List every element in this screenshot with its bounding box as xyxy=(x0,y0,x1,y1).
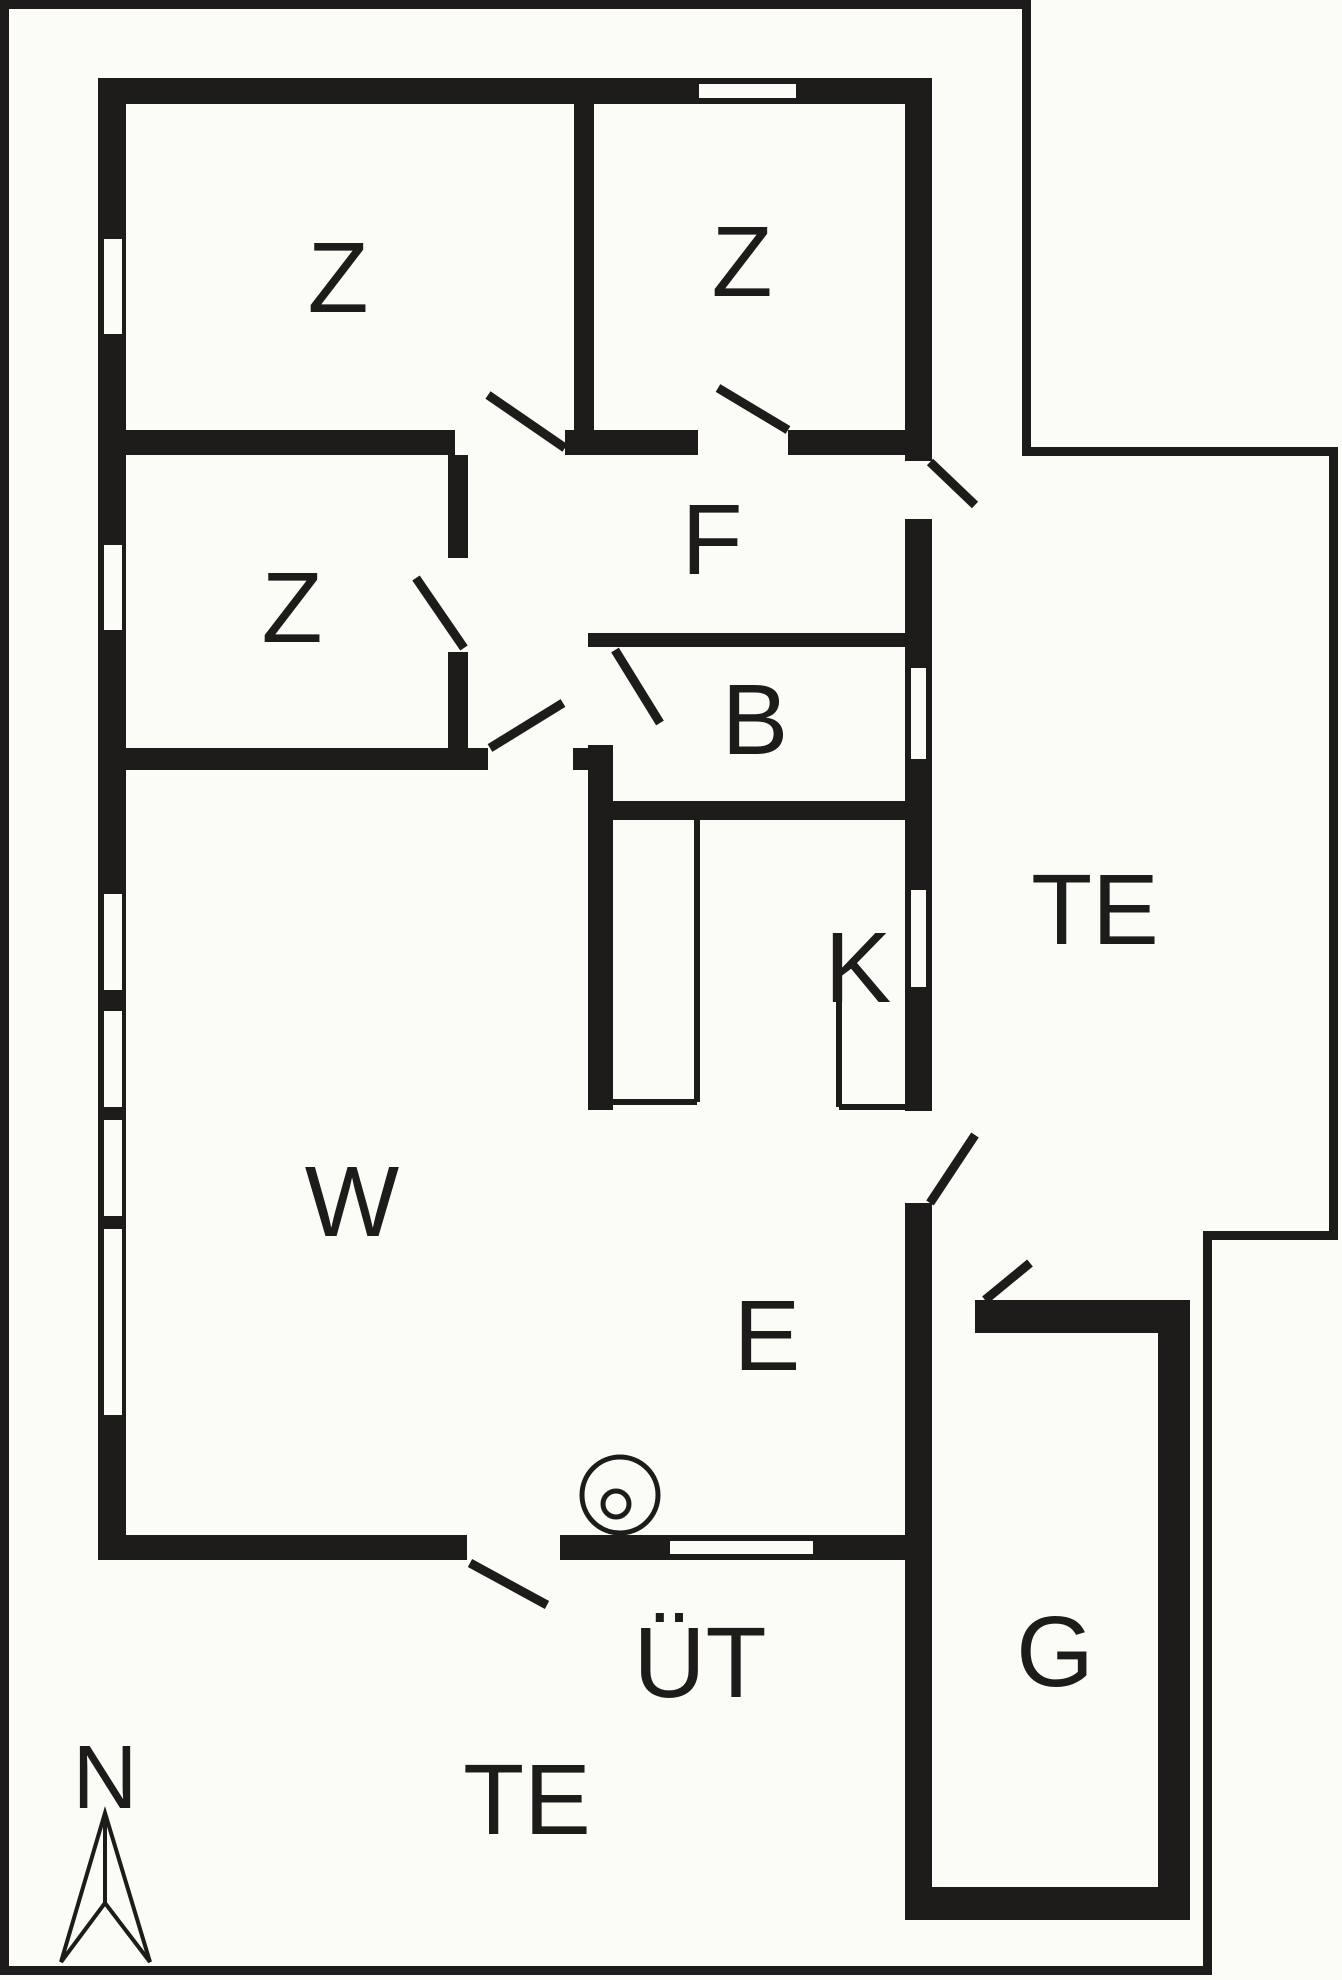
wall-bath-bottom xyxy=(588,801,905,820)
room-label-te-south: TE xyxy=(463,1750,591,1850)
wall-living-top-a xyxy=(126,748,488,770)
wall-kitchen-west xyxy=(588,745,613,1110)
room-label-g: G xyxy=(1016,1602,1094,1702)
plot-border-bottom xyxy=(0,1966,1212,1975)
wall-east-middle xyxy=(905,519,932,1111)
room-label-f: F xyxy=(681,490,742,590)
wall-bedroom-band-c xyxy=(788,430,905,455)
room-label-z3: Z xyxy=(261,558,322,658)
wall-z3-east-upper xyxy=(448,455,468,558)
window-east-b xyxy=(911,668,926,759)
door-leaf-bath xyxy=(615,650,660,723)
door-leaf-garage xyxy=(985,1263,1030,1300)
window-east-k xyxy=(911,890,926,987)
room-label-north: N xyxy=(73,1733,138,1823)
window-west-w1 xyxy=(104,894,122,990)
window-north-z2 xyxy=(699,84,796,98)
window-west-w4 xyxy=(104,1229,122,1415)
door-leaf-covered-terrace xyxy=(470,1563,547,1605)
room-label-z1: Z xyxy=(307,228,368,328)
window-south xyxy=(670,1541,813,1554)
plot-border-step-vertical xyxy=(1203,1231,1212,1975)
wall-east-upper xyxy=(905,78,932,461)
window-west-z1 xyxy=(104,239,122,334)
door-leaf-z2 xyxy=(718,388,788,430)
door-leaf-dining-terrace xyxy=(930,1135,975,1203)
plot-border-top xyxy=(0,0,1031,9)
plot-border-notch-horizontal xyxy=(1022,447,1338,456)
wall-south-west xyxy=(98,1535,467,1560)
window-west-w2 xyxy=(104,1011,122,1107)
plot-border-right xyxy=(1329,447,1338,1240)
floor-plan-canvas: ZZZFBKTEWEGÜTTEN xyxy=(0,0,1342,1980)
room-label-e: E xyxy=(734,1286,801,1386)
room-label-z2: Z xyxy=(711,212,772,312)
stove-inner-circle xyxy=(603,1491,629,1517)
wall-bedroom-band-b xyxy=(565,430,698,455)
wall-z1-z2-divider xyxy=(574,104,594,430)
room-label-b: B xyxy=(722,670,789,770)
wall-bath-top xyxy=(588,633,905,647)
window-west-z3 xyxy=(104,545,122,630)
plot-border-step-horizontal xyxy=(1203,1231,1338,1240)
door-leaf-z3 xyxy=(416,578,464,648)
wall-north xyxy=(98,78,932,104)
window-west-w3 xyxy=(104,1120,122,1216)
plot-border-left xyxy=(0,0,9,1975)
door-leaf-z1 xyxy=(488,395,565,448)
wall-bedroom-band-a xyxy=(126,430,455,455)
room-label-w: W xyxy=(305,1152,399,1252)
room-label-te-east: TE xyxy=(1031,860,1159,960)
door-leaf-hall-living xyxy=(490,703,563,748)
room-label-k: K xyxy=(825,918,892,1018)
stove-outer-circle xyxy=(582,1457,658,1533)
room-label-ut: ÜT xyxy=(633,1613,766,1713)
garage-wall-south xyxy=(905,1887,1190,1920)
wall-east-lower xyxy=(905,1203,932,1920)
plot-border-notch-vertical xyxy=(1022,0,1031,456)
garage-wall-east xyxy=(1158,1300,1190,1920)
door-leaf-hall-terrace xyxy=(930,462,975,505)
